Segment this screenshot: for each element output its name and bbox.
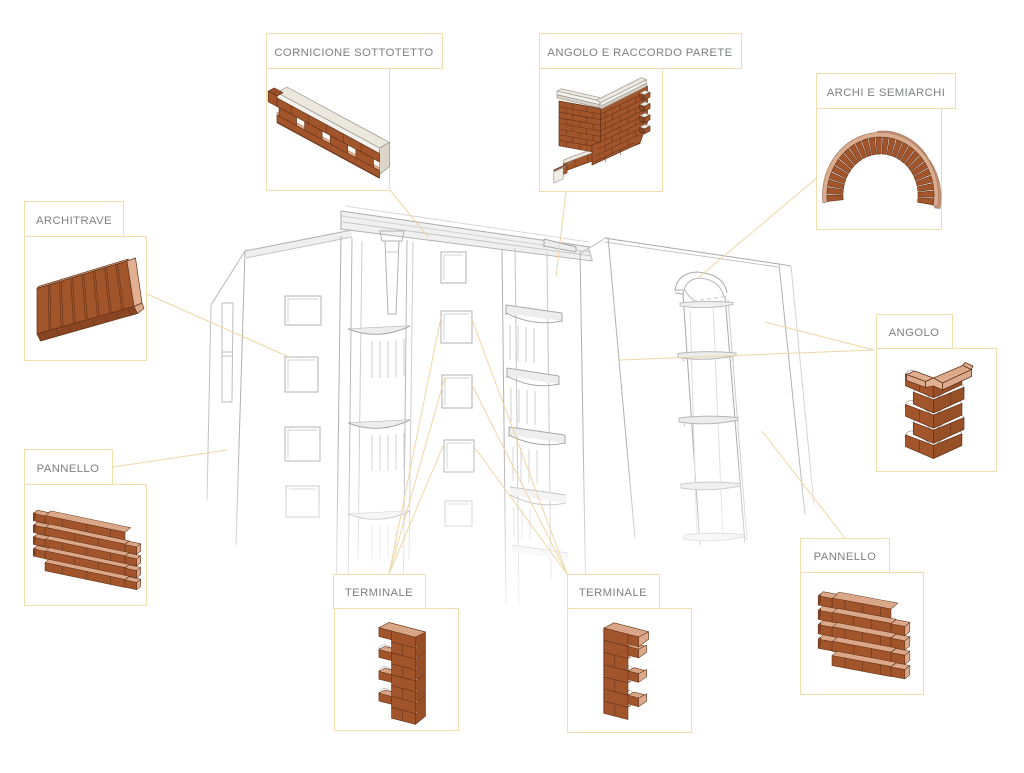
svg-text:ARCHI E SEMIARCHI: ARCHI E SEMIARCHI [827,87,946,99]
svg-text:TERMINALE: TERMINALE [579,587,647,599]
svg-text:ANGOLO: ANGOLO [889,327,940,339]
svg-text:ANGOLO E RACCORDO PARETE: ANGOLO E RACCORDO PARETE [547,47,732,59]
svg-text:PANNELLO: PANNELLO [814,551,877,563]
svg-text:ARCHITRAVE: ARCHITRAVE [36,215,112,227]
svg-text:TERMINALE: TERMINALE [345,587,413,599]
svg-text:CORNICIONE SOTTOTETTO: CORNICIONE SOTTOTETTO [274,47,433,59]
svg-text:PANNELLO: PANNELLO [37,463,100,475]
